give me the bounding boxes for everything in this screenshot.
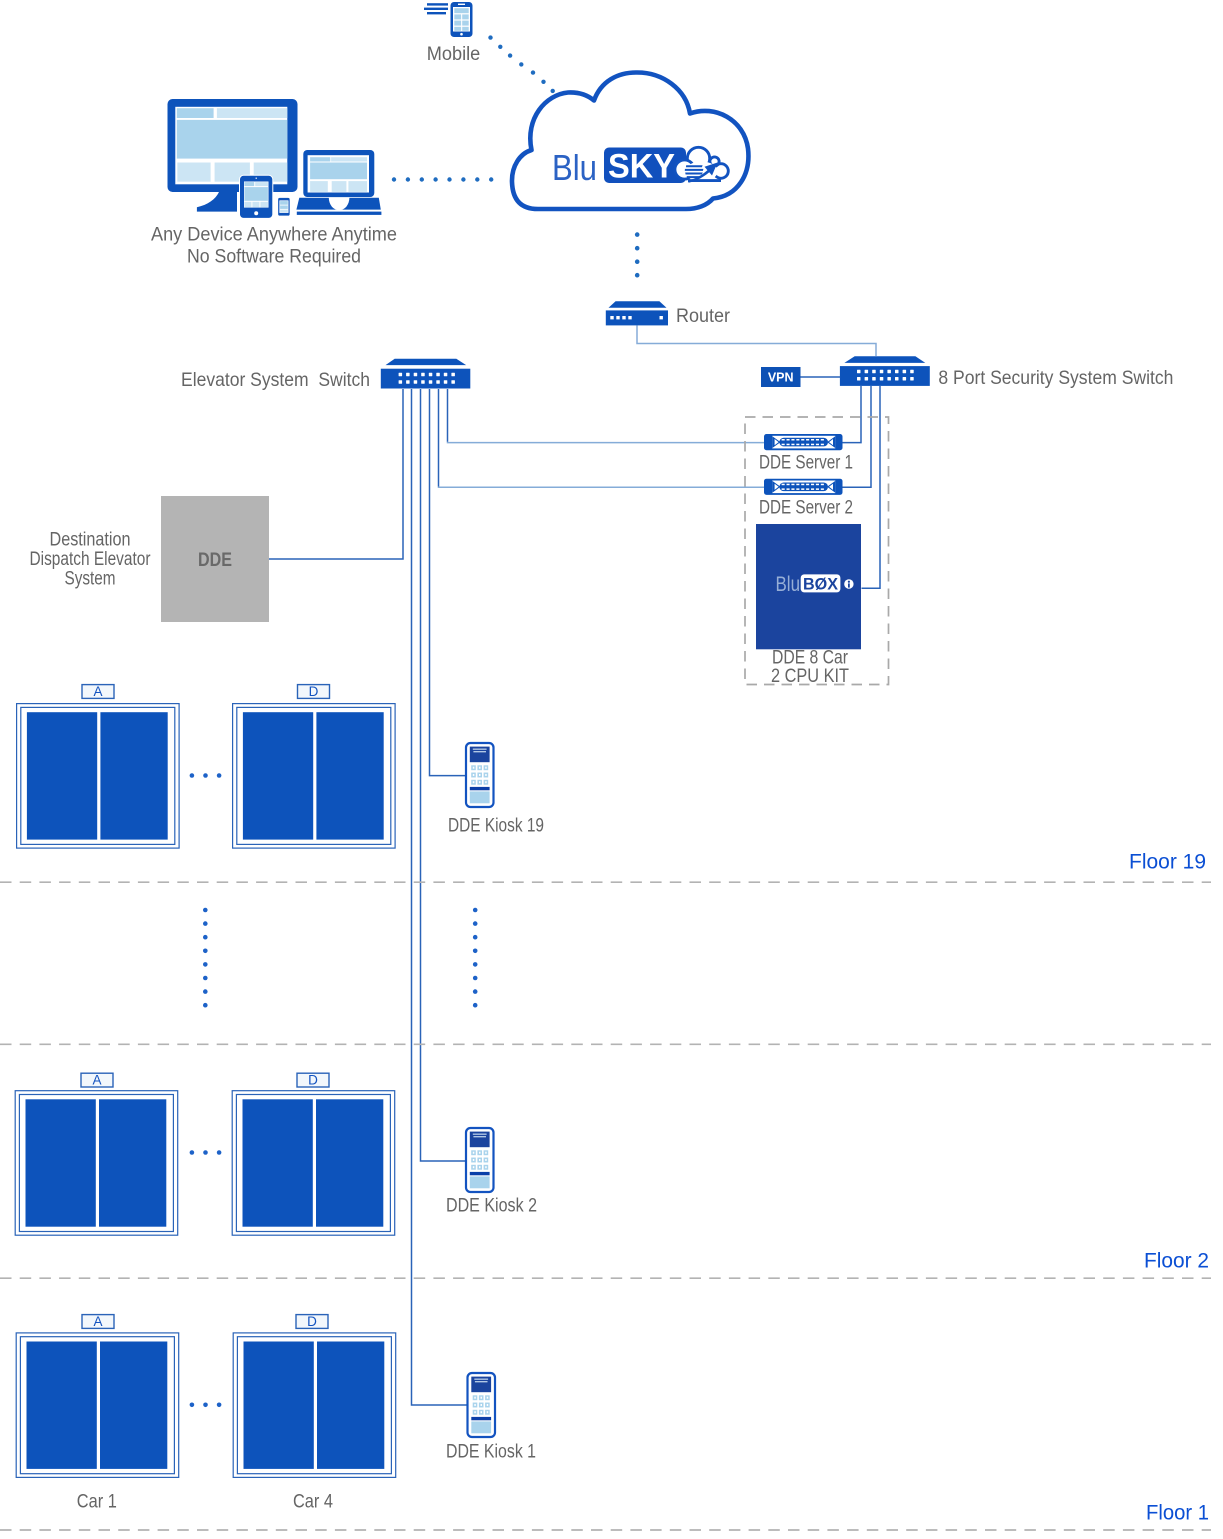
svg-text:System: System — [65, 569, 116, 590]
svg-text:A: A — [93, 684, 102, 699]
svg-text:Floor 2: Floor 2 — [1144, 1249, 1209, 1273]
svg-text:DDE Kiosk 2: DDE Kiosk 2 — [446, 1196, 537, 1217]
svg-text:Car 1: Car 1 — [77, 1492, 117, 1513]
svg-text:DDE: DDE — [198, 550, 232, 571]
svg-text:Floor 1: Floor 1 — [1146, 1501, 1209, 1525]
svg-text:Blu: Blu — [552, 147, 597, 188]
svg-text:D: D — [309, 684, 319, 699]
svg-text:2 CPU KIT: 2 CPU KIT — [771, 666, 849, 687]
svg-text:D: D — [308, 1073, 318, 1088]
svg-text:A: A — [92, 1073, 101, 1088]
svg-text:A: A — [93, 1314, 102, 1329]
svg-text:Any Device Anywhere Anytime: Any Device Anywhere Anytime — [151, 224, 397, 246]
svg-text:BØX: BØX — [803, 576, 838, 594]
svg-text:Dispatch Elevator: Dispatch Elevator — [30, 549, 152, 570]
svg-text:DDE Server 1: DDE Server 1 — [759, 453, 853, 474]
svg-text:D: D — [307, 1314, 317, 1329]
svg-text:Router: Router — [676, 305, 730, 327]
svg-text:8 Port Security System Switch: 8 Port Security System Switch — [938, 367, 1173, 389]
svg-text:SKY: SKY — [608, 148, 675, 186]
svg-text:DDE Kiosk 19: DDE Kiosk 19 — [448, 816, 544, 837]
svg-text:Blu: Blu — [776, 573, 801, 596]
svg-text:VPN: VPN — [768, 371, 794, 385]
svg-text:No Software Required: No Software Required — [187, 246, 361, 268]
svg-text:Floor 19: Floor 19 — [1129, 850, 1206, 874]
svg-text:Elevator System Switch: Elevator System Switch — [181, 369, 370, 391]
svg-text:Destination: Destination — [50, 530, 131, 551]
svg-text:DDE Server 2: DDE Server 2 — [759, 497, 853, 518]
svg-text:Car 4: Car 4 — [293, 1492, 333, 1513]
svg-text:Mobile: Mobile — [427, 43, 481, 65]
svg-text:DDE Kiosk 1: DDE Kiosk 1 — [446, 1442, 536, 1463]
